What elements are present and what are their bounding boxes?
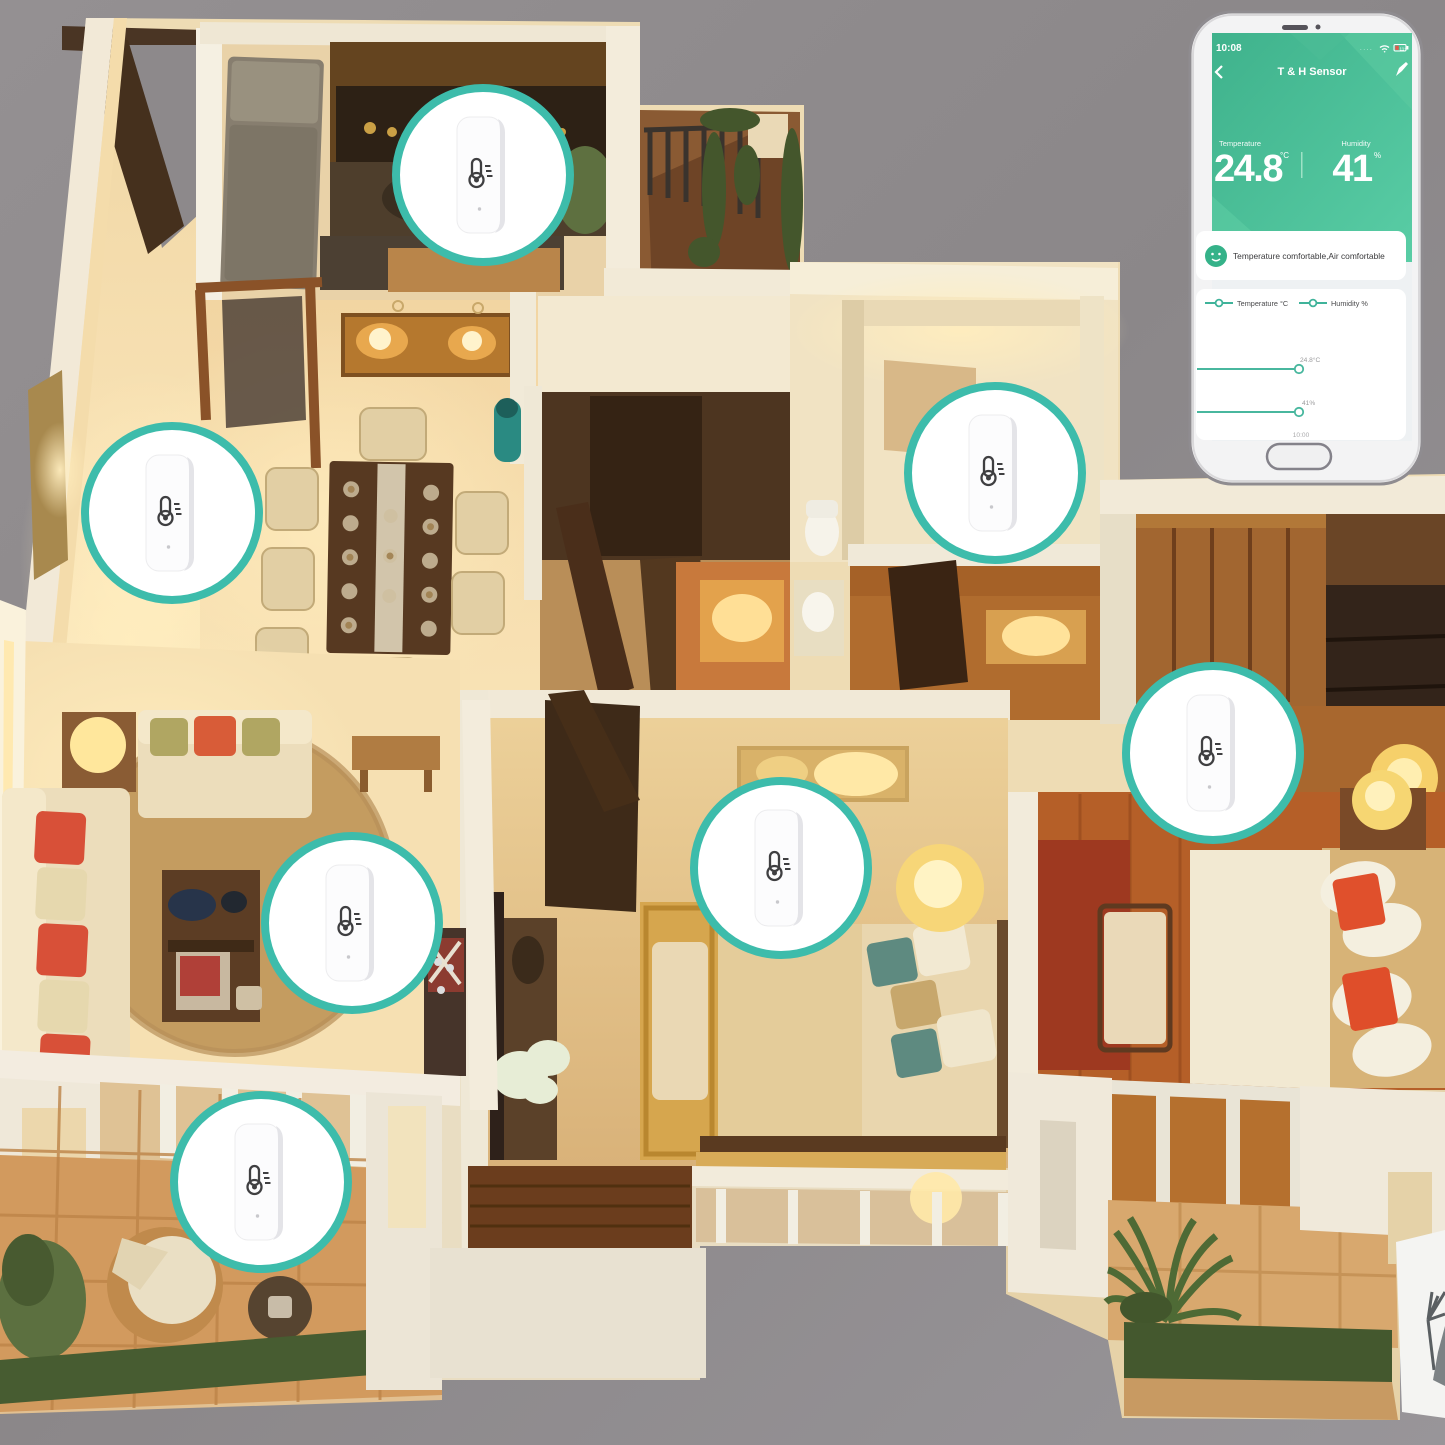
svg-text:Temperature °C: Temperature °C xyxy=(1237,299,1288,308)
svg-text:Humidity %: Humidity % xyxy=(1331,299,1368,308)
svg-text:Humidity: Humidity xyxy=(1341,139,1370,148)
svg-text:10:00: 10:00 xyxy=(1293,432,1310,439)
svg-text:Temperature: Temperature xyxy=(1219,139,1261,148)
svg-text:Temperature comfortable,Air co: Temperature comfortable,Air comfortable xyxy=(1233,251,1385,261)
svg-text:24.8: 24.8 xyxy=(1214,148,1282,190)
svg-text:10:08: 10:08 xyxy=(1216,43,1242,54)
svg-text:41%: 41% xyxy=(1302,400,1315,407)
svg-text:T & H Sensor: T & H Sensor xyxy=(1277,66,1347,78)
svg-text:41: 41 xyxy=(1332,148,1373,190)
svg-text:11+: 11+ xyxy=(1400,46,1408,51)
svg-text:%: % xyxy=(1374,151,1381,160)
svg-text:. . . .: . . . . xyxy=(1360,46,1372,52)
svg-text:°C: °C xyxy=(1280,151,1289,160)
svg-text:24.8°C: 24.8°C xyxy=(1300,356,1320,364)
